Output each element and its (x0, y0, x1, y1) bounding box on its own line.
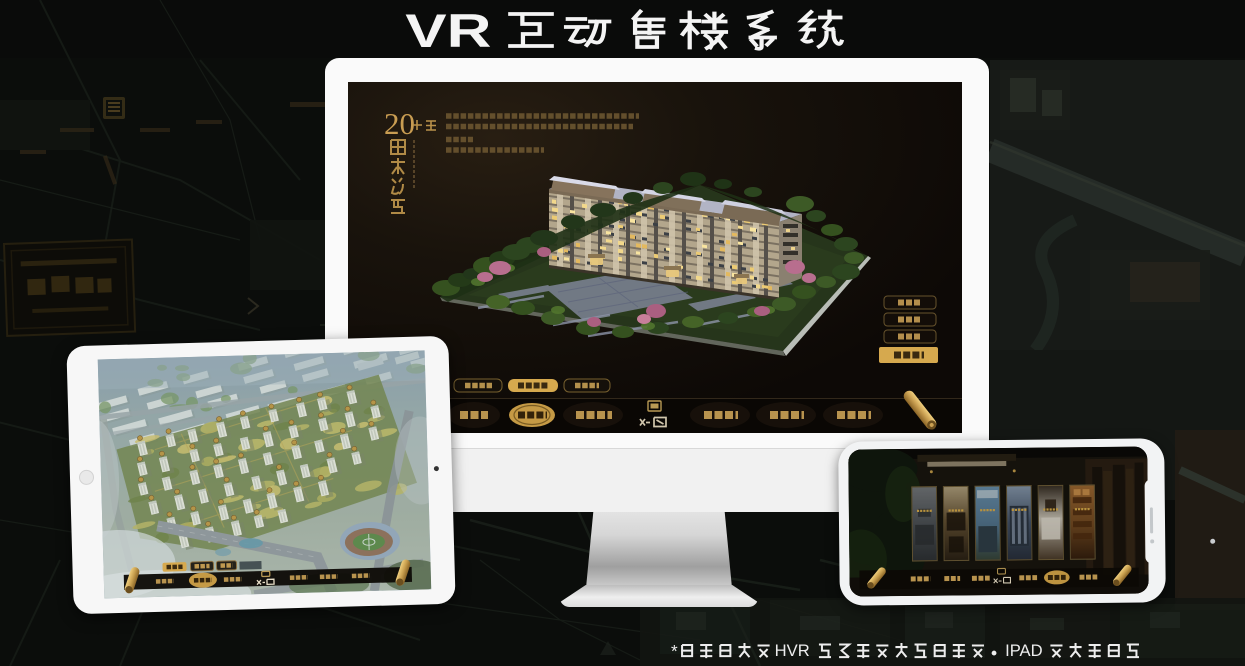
svg-text:*: * (671, 642, 678, 661)
svg-text:VR: VR (405, 6, 491, 56)
svg-text:HVR: HVR (775, 641, 810, 660)
svg-text:20: 20 (384, 106, 415, 141)
svg-text:IPAD: IPAD (1005, 641, 1043, 660)
